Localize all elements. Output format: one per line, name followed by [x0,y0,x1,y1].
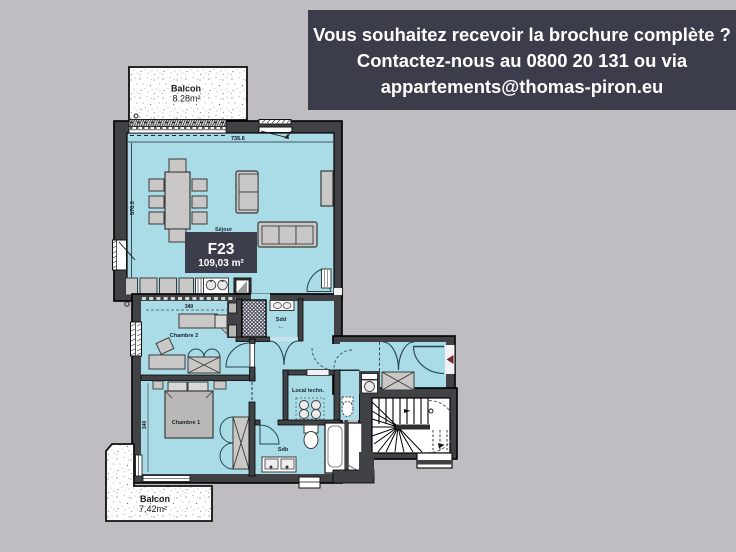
svg-text:Balcon: Balcon [171,84,201,94]
svg-text:Local techn.: Local techn. [292,388,325,394]
svg-text:appartements@thomas-piron.eu: appartements@thomas-piron.eu [381,76,664,97]
svg-text:570.3: 570.3 [130,201,136,215]
svg-text:109,03 m²: 109,03 m² [198,258,244,269]
svg-text:340: 340 [185,304,194,310]
svg-text:Chambre 1: Chambre 1 [172,420,200,426]
svg-text:8.28m²: 8.28m² [172,94,200,104]
svg-text:Balcon: Balcon [140,494,170,504]
svg-text:Vous souhaitez recevoir la bro: Vous souhaitez recevoir la brochure comp… [313,24,731,45]
svg-text:7,42m²: 7,42m² [139,504,167,514]
svg-text:←: ← [278,324,284,330]
svg-text:Sdb: Sdb [278,447,289,453]
svg-text:Chambre 2: Chambre 2 [170,333,198,339]
svg-text:735.6: 735.6 [231,136,245,142]
svg-text:340: 340 [142,421,148,430]
svg-text:Sdd: Sdd [276,317,286,323]
svg-text:Contactez-nous au 0800 20 131: Contactez-nous au 0800 20 131 ou via [357,50,688,71]
svg-text:F23: F23 [208,241,235,258]
